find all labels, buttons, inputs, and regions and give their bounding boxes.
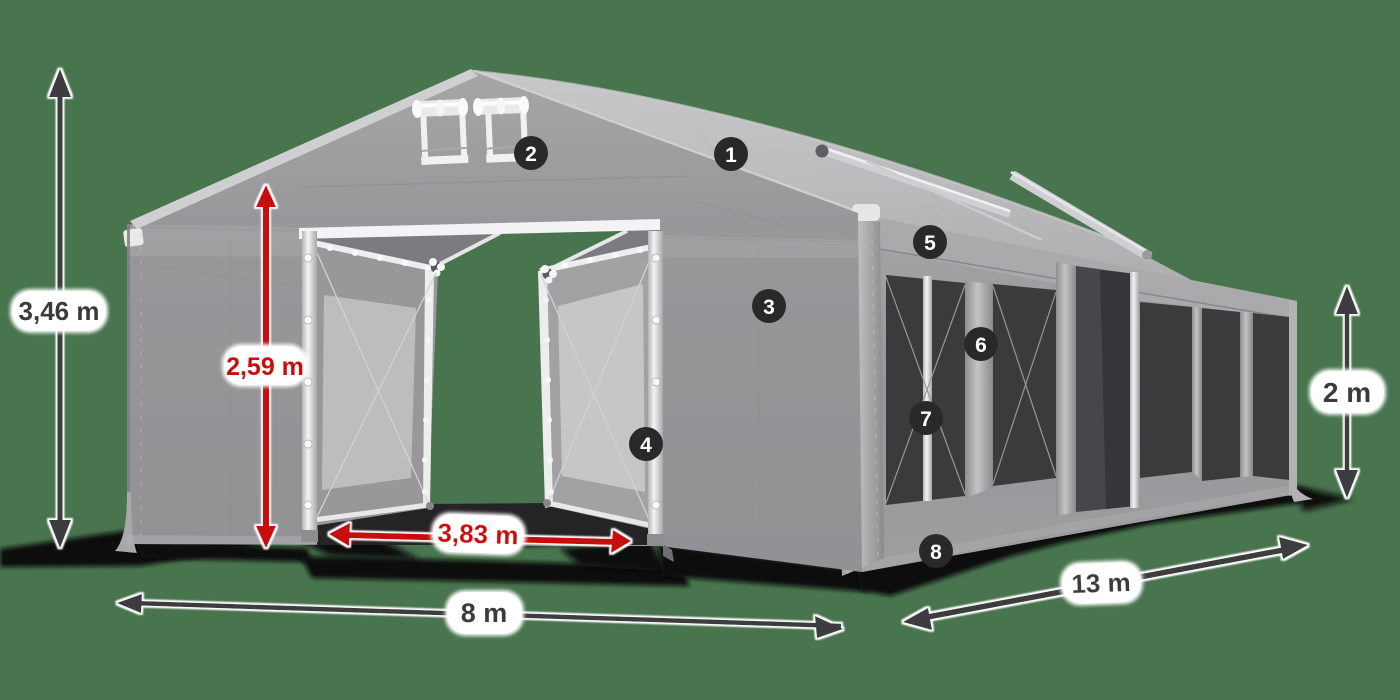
- svg-text:8 m: 8 m: [461, 598, 508, 628]
- svg-text:4: 4: [640, 434, 652, 457]
- svg-text:13 m: 13 m: [1071, 567, 1131, 599]
- svg-text:3,83 m: 3,83 m: [437, 518, 519, 551]
- svg-text:3: 3: [763, 296, 775, 319]
- svg-text:1: 1: [725, 144, 737, 167]
- svg-text:5: 5: [924, 232, 936, 255]
- svg-text:2 m: 2 m: [1323, 377, 1371, 408]
- svg-text:2: 2: [525, 143, 537, 166]
- svg-text:3,46 m: 3,46 m: [19, 296, 100, 326]
- svg-text:8: 8: [930, 541, 942, 564]
- svg-text:6: 6: [975, 334, 987, 357]
- svg-text:2,59 m: 2,59 m: [226, 353, 304, 381]
- svg-text:7: 7: [920, 408, 932, 431]
